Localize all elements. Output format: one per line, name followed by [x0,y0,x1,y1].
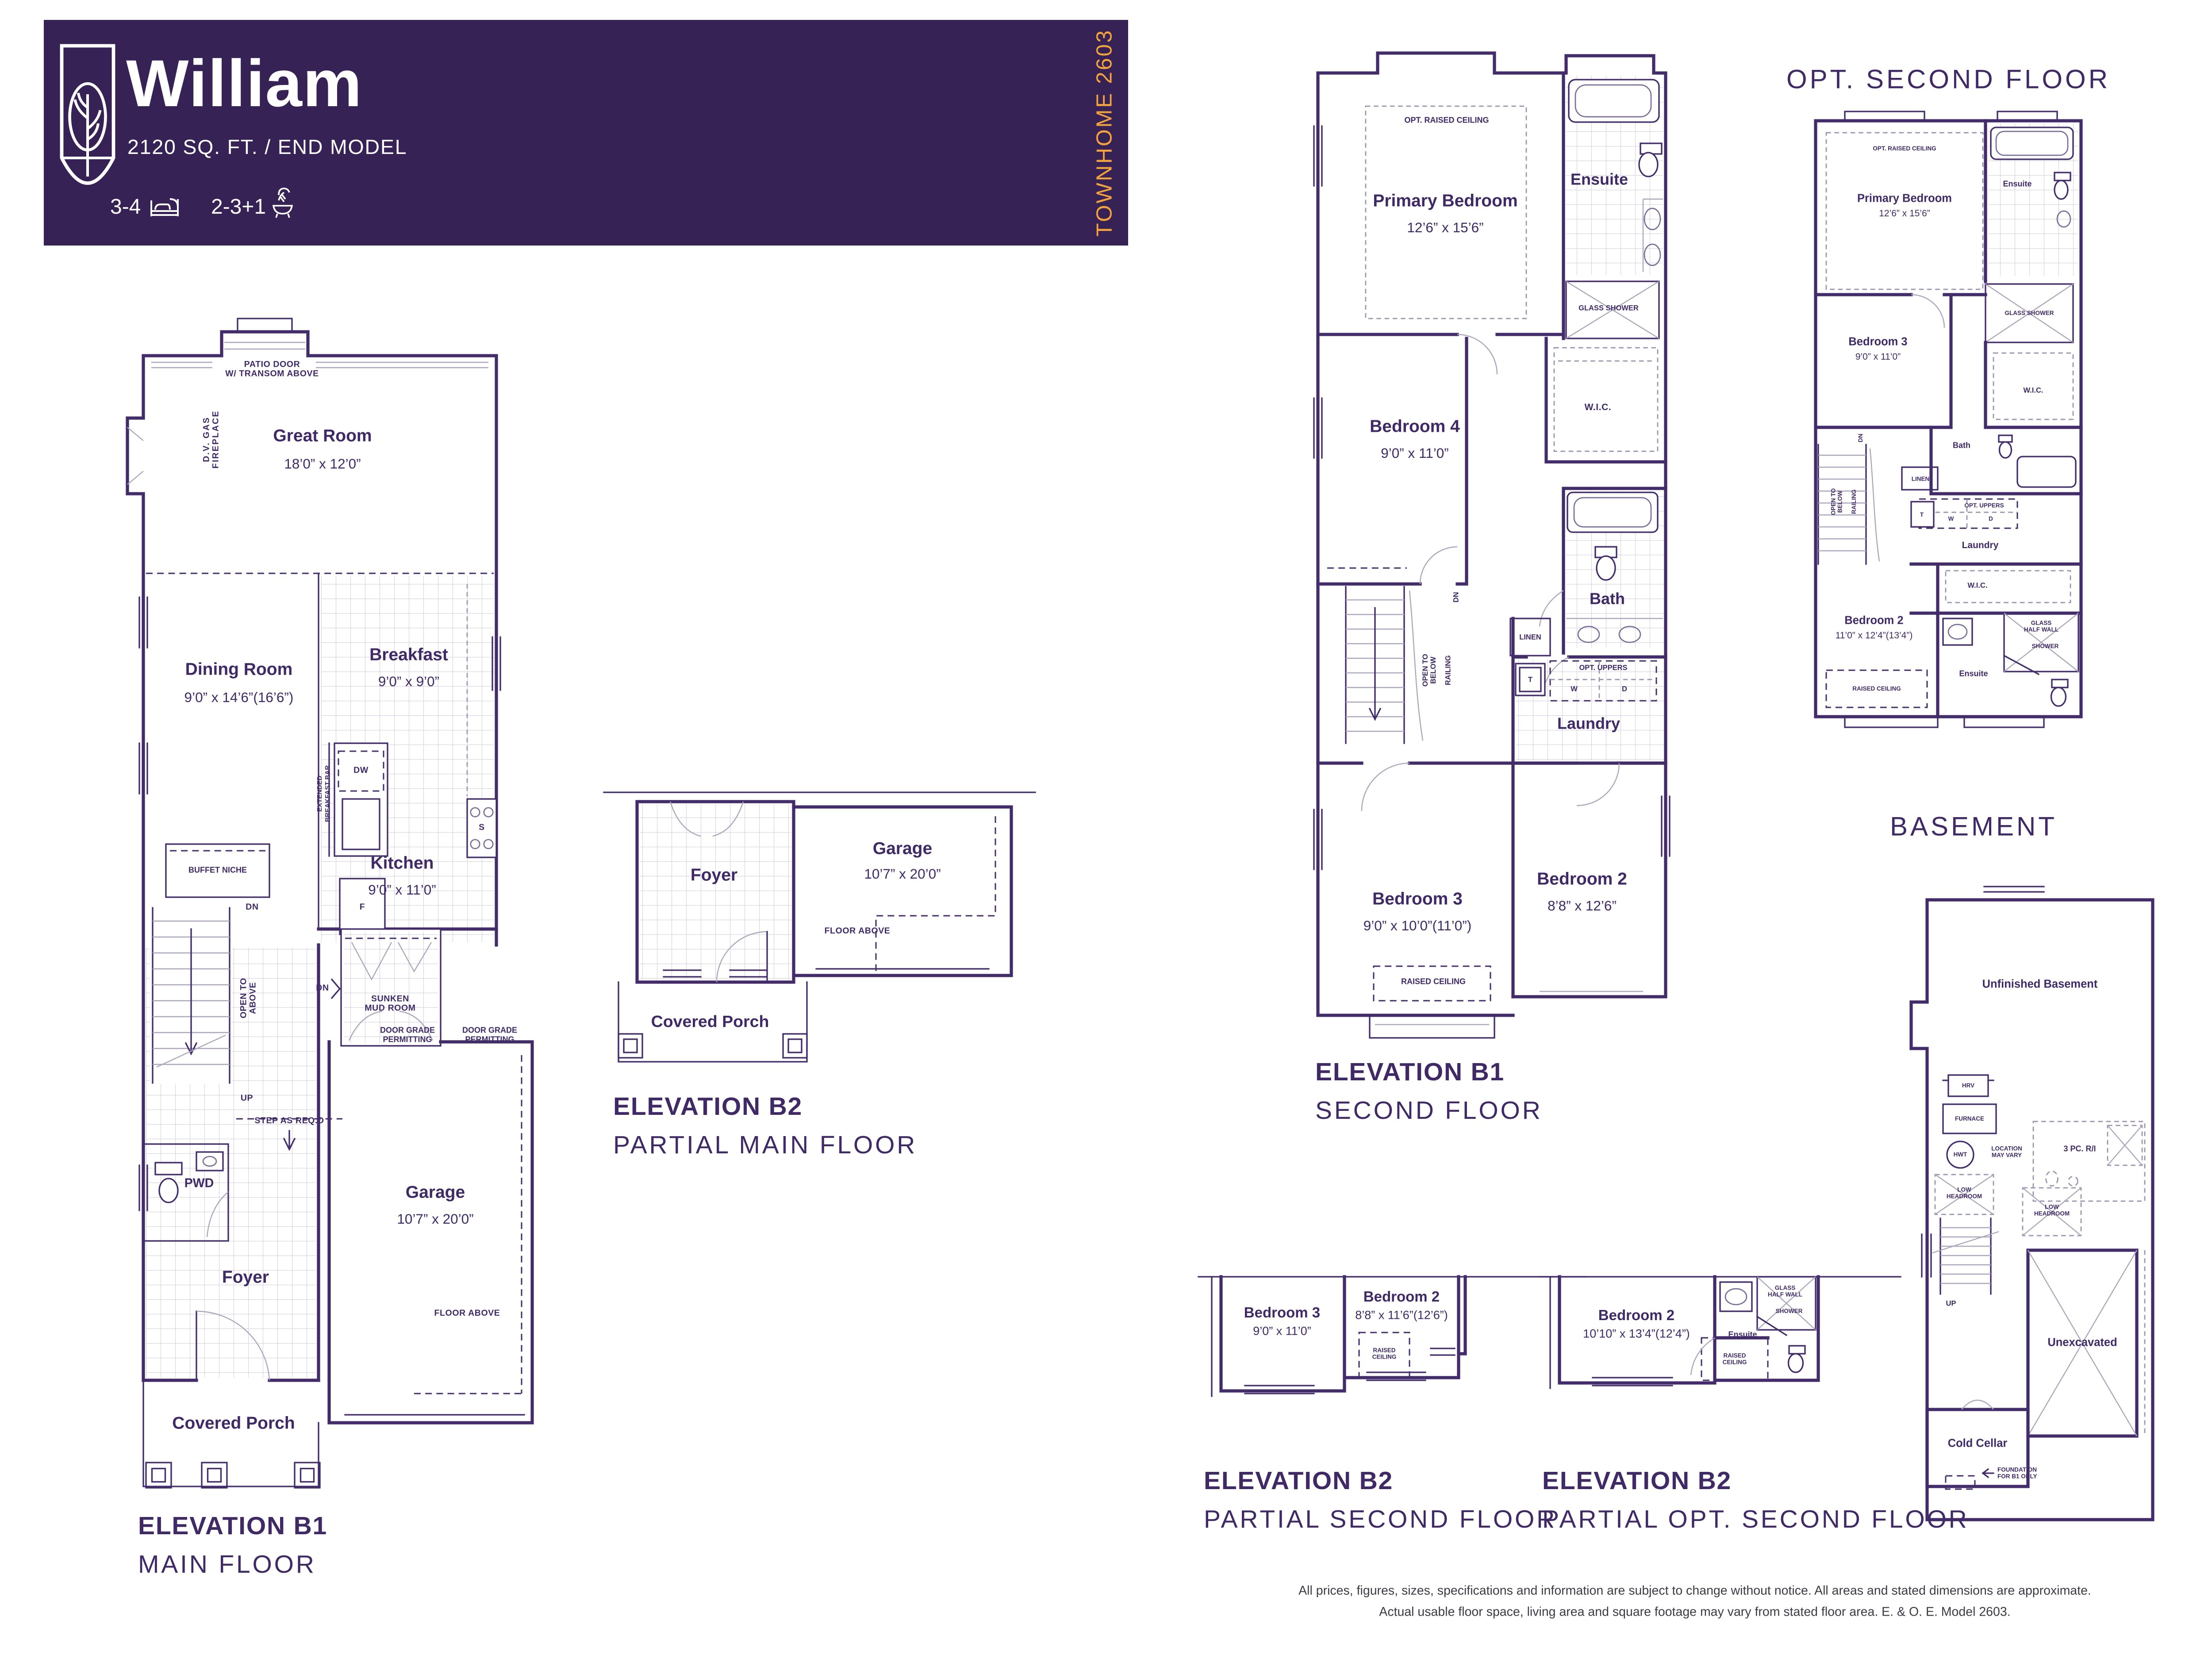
sf-open-to-below-label: OPEN TOBELOW [1422,654,1439,687]
sf-laundry-label: Laundry [1557,715,1620,733]
stairs-up-label: UP [241,1094,253,1104]
second-floor-caption2: SECOND FLOOR [1315,1098,1543,1127]
posf-caption1: ELEVATION B2 [1542,1468,1732,1497]
osf-opt-raised-label: OPT. RAISED CEILING [1873,145,1936,152]
step-as-reqd-label: STEP AS REQ.D [254,1117,324,1126]
bsmt-foundation-label: FOUNDATIONFOR B1 ONLY [1997,1466,2037,1480]
opt-second-floor-title: OPT. SECOND FLOOR [1786,66,2110,96]
osf-tub-label: T [1920,511,1924,518]
covered-porch-label: Covered Porch [172,1414,295,1434]
bsmt-unexcavated-label: Unexcavated [2047,1336,2117,1349]
bsmt-cold-cellar-label: Cold Cellar [1948,1437,2008,1450]
sf-dn-label: DN [1453,592,1462,603]
posf-bedroom2-dims: 10’10” x 13’4”(12’4”) [1583,1327,1690,1340]
osf-opt-uppers-label: OPT. UPPERS [1964,502,2004,509]
sf-bedroom4-label: Bedroom 4 [1370,418,1460,438]
sf-primary-bedroom-dims: 12’6” x 15’6” [1407,220,1483,236]
main-floor-caption1: ELEVATION B1 [138,1513,327,1542]
b2-covered-porch-label: Covered Porch [651,1012,769,1031]
osf-wic2-label: W.I.C. [1968,583,1988,591]
baths-count: 2-3+1 [211,196,266,220]
stairs-dn-label: DN [246,903,258,913]
sf-bedroom2-label: Bedroom 2 [1537,870,1627,890]
fireplace-label: D.V. GASFIREPLACE [203,410,223,469]
second-floor-caption1: ELEVATION B1 [1315,1059,1505,1088]
great-room-label: Great Room [273,427,372,447]
main-floor-caption2: MAIN FLOOR [138,1551,316,1581]
basement-title: BASEMENT [1890,813,2057,844]
dishwasher-label: DW [353,766,369,776]
psf-caption2: PARTIAL SECOND FLOOR [1204,1506,1557,1536]
extended-breakfast-bar-label: EXTENDEDBREAKFAST BAR [318,765,333,822]
mudroom-dn-label: DN [316,984,329,994]
kitchen-label: Kitchen [370,854,434,874]
model-title: William [126,45,362,122]
floor-above-label: FLOOR ABOVE [434,1309,500,1319]
sf-primary-bedroom-label: Primary Bedroom [1373,192,1517,212]
kitchen-dims: 9’0” x 11’0” [368,883,436,899]
sf-railing-label: RAILING [1445,655,1454,685]
door-grade-label-2: DOOR GRADEPERMITTING [462,1027,517,1045]
great-room-dims: 18’0” x 12’0” [284,457,361,472]
osf-bath-label: Bath [1953,443,1970,452]
sf-tub-label: T [1528,677,1532,685]
plan-linework: .w{fill:none;stroke:#432C6A;stroke-width… [0,0,2212,1659]
osf-dn-label: DN [1857,434,1864,442]
b2-main-caption1: ELEVATION B2 [613,1094,803,1123]
bsmt-low-headroom1-label: LOWHEADROOM [1947,1186,1982,1200]
sf-bedroom2-dims: 8’8” x 12’6” [1548,899,1617,914]
bsmt-3pc-label: 3 PC. R/I [2063,1146,2096,1156]
osf-wic-label: W.I.C. [2024,388,2043,396]
osf-glass-half-wall-label: GLASSHALF WALL [2024,619,2058,633]
sf-wic-label: W.I.C. [1585,403,1612,414]
townhome-number-label: TOWNHOME 2603 [1093,29,1118,237]
osf-bedroom3-dims: 9’0” x 11’0” [1855,353,1901,364]
posf-bedroom2-label: Bedroom 2 [1598,1308,1674,1325]
bath-icon [272,187,293,219]
osf-glass-shower-label: GLASS SHOWER [2005,310,2054,317]
b2-garage-label: Garage [873,840,932,860]
sf-raised-ceiling-label: RAISED CEILING [1401,979,1466,988]
open-to-above-label: OPEN TOABOVE [240,978,260,1018]
floorplan-sheet: .w{fill:none;stroke:#432C6A;stroke-width… [0,0,2212,1659]
osf-dryer-label: D [1989,515,1993,522]
dining-room-dims: 9’0” x 14’6”(16’6”) [184,690,294,706]
sf-washer-label: W [1571,686,1578,695]
b2-floor-above-label: FLOOR ABOVE [825,927,891,937]
osf-bedroom2-dims: 11’0” x 12’4”(13’4”) [1836,632,1913,642]
osf-washer-label: W [1948,515,1954,522]
bsmt-hrv-label: HRV [1962,1082,1974,1089]
sf-glass-shower-label: GLASS SHOWER [1578,305,1639,314]
osf-bedroom2-label: Bedroom 2 [1844,614,1903,627]
sf-ensuite-label: Ensuite [1571,171,1628,189]
osf-bedroom3-label: Bedroom 3 [1848,336,1907,349]
osf-primary-dims: 12’6” x 15’6” [1879,210,1930,220]
psf-bedroom2-dims: 8’8” x 11’6”(12’6”) [1355,1308,1448,1322]
posf-ensuite-label: Ensuite [1728,1332,1757,1341]
garage-label: Garage [406,1183,465,1203]
door-grade-label-1: DOOR GRADEPERMITTING [380,1027,435,1045]
bsmt-up-label: UP [1946,1301,1956,1309]
osf-raised-ceiling-label: RAISED CEILING [1852,685,1901,692]
sf-bath-label: Bath [1590,591,1625,609]
brand-logo [60,44,115,211]
header-banner: William 2120 SQ. FT. / END MODEL 3-4 2-3… [44,20,1128,246]
osf-ensuite-label: Ensuite [2003,181,2032,191]
osf-railing-label: RAILING [1851,489,1858,514]
osf-ensuite2-label: Ensuite [1959,671,1988,680]
posf-caption2: PARTIAL OPT. SECOND FLOOR [1542,1506,1969,1536]
psf-bedroom3-label: Bedroom 3 [1244,1306,1320,1322]
disclaimer-line2: Actual usable floor space, living area a… [1379,1607,2010,1621]
osf-primary-label: Primary Bedroom [1857,192,1952,205]
sf-bedroom3-label: Bedroom 3 [1372,890,1463,910]
bed-icon [150,198,179,219]
breakfast-label: Breakfast [369,646,448,666]
fridge-label: F [360,903,365,913]
sf-bedroom3-dims: 9’0” x 10’0”(11’0”) [1363,918,1472,934]
dining-room-label: Dining Room [185,661,293,680]
garage-dims: 10’7” x 20’0” [397,1212,473,1228]
sf-bedroom4-dims: 9’0” x 11’0” [1381,446,1449,462]
bsmt-location-label: LOCATIONMAY VARY [1991,1145,2022,1159]
breakfast-dims: 9’0” x 9’0” [378,674,439,690]
osf-linen-label: LINEN [1912,476,1930,483]
osf-shower-label: SHOWER [2032,643,2059,650]
disclaimer-line1: All prices, figures, sizes, specificatio… [1298,1586,2091,1600]
beds-count: 3-4 [110,196,141,220]
bsmt-hwt-label: HWT [1954,1151,1967,1158]
foyer-label: Foyer [222,1268,269,1288]
posf-glass-half-wall-label: GLASSHALF WALL [1768,1284,1802,1298]
bsmt-unfinished-label: Unfinished Basement [1982,978,2098,991]
bsmt-low-headroom2-label: LOWHEADROOM [2034,1203,2070,1217]
sunken-mud-room-label: SUNKENMUD ROOM [365,995,415,1015]
sf-dryer-label: D [1622,686,1627,695]
sf-opt-raised-ceiling-label: OPT. RAISED CEILING [1404,118,1489,127]
model-subtitle: 2120 SQ. FT. / END MODEL [127,137,407,161]
osf-laundry-label: Laundry [1962,541,1999,552]
b2-foyer-label: Foyer [691,866,737,886]
psf-raised-ceiling-label: RAISEDCEILING [1372,1347,1397,1360]
buffet-niche-label: BUFFET NICHE [188,868,247,877]
psf-caption1: ELEVATION B2 [1204,1468,1393,1497]
patio-door-label: PATIO DOORW/ TRANSOM ABOVE [225,361,319,380]
posf-raised-ceiling-label: RAISEDCEILING [1723,1352,1747,1366]
b2-main-caption2: PARTIAL MAIN FLOOR [613,1132,917,1161]
psf-bedroom3-dims: 9’0” x 11’0” [1253,1324,1311,1338]
bsmt-furnace-label: FURNACE [1955,1115,1984,1122]
stove-label: S [479,823,485,833]
pwd-label: PWD [184,1178,214,1193]
psf-bedroom2-label: Bedroom 2 [1363,1290,1440,1306]
sf-opt-uppers-label: OPT. UPPERS [1579,665,1627,673]
osf-open-below-label: OPEN TOBELOW [1830,488,1843,515]
b2-garage-dims: 10’7” x 20’0” [864,867,941,883]
sf-linen-label: LINEN [1519,634,1541,643]
posf-shower-label: SHOWER [1776,1308,1803,1315]
